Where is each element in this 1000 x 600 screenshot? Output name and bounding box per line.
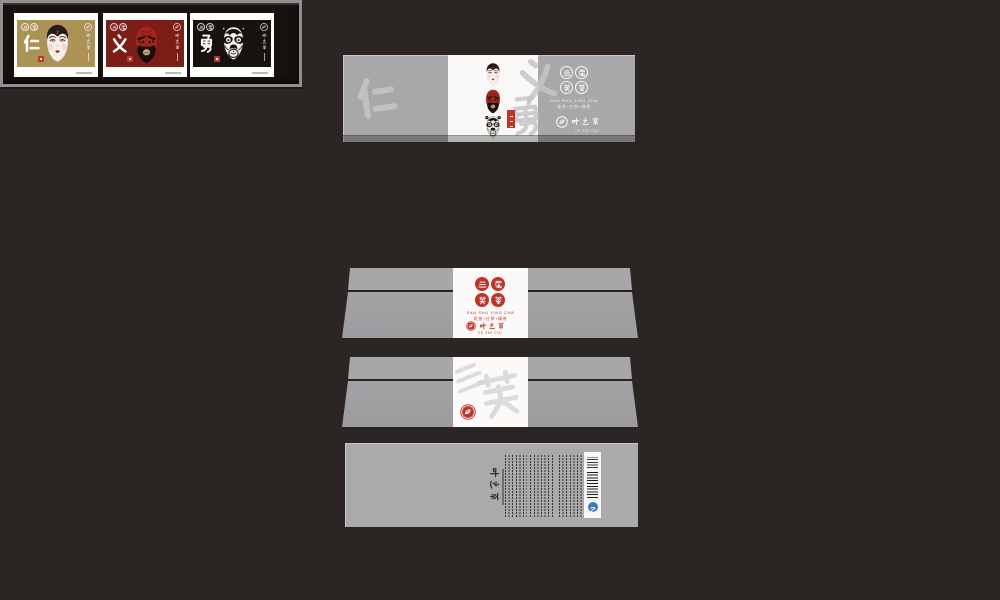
virtue-glyph-yi [109, 33, 130, 54]
brand-latin-line: SAN SHU YING CHA [456, 310, 525, 315]
card-footnote [252, 72, 268, 75]
card-seal-shu [206, 23, 214, 31]
logo-glyphs-vertical [262, 33, 267, 51]
card-seal-san [21, 23, 29, 31]
tea-types-line: 花茶+红茶+绿茶 [539, 104, 609, 109]
seal-char-cha [491, 293, 505, 307]
netweight-text-block [587, 457, 598, 468]
fine-print-columns [505, 455, 583, 517]
logo-sub-line: YE ZHI CUI [466, 331, 514, 336]
leaf-emblem-stamp [460, 404, 476, 420]
logo-glyphs-vertical [175, 33, 180, 51]
virtue-glyph-ren [20, 33, 41, 54]
vertical-rule [88, 53, 90, 61]
tea-types-line: 花茶+红茶+绿茶 [456, 316, 525, 321]
fine-print-gap [555, 455, 558, 517]
package-side-front: SAN SHU YING CHA 花茶+红茶+绿茶 YE ZHI CUI [342, 268, 638, 338]
zhang-mask-icon [218, 22, 249, 65]
card-band-black [193, 20, 271, 67]
virtue-glyph-yong [196, 33, 217, 54]
tea-card-yi [103, 13, 187, 77]
logo-glyphs-vertical [86, 33, 91, 51]
logo-glyphs [571, 117, 600, 126]
rotated-logo-glyphs [487, 467, 501, 507]
logo-glyphs [479, 322, 505, 330]
card-footnote [165, 72, 181, 75]
watermark-ying-glyph [468, 360, 528, 427]
side-paper-strip: SAN SHU YING CHA 花茶+红茶+绿茶 YE ZHI CUI [453, 268, 528, 338]
watermark-ren-glyph [344, 55, 405, 141]
vertical-rule [264, 53, 266, 61]
seal-char-shu [575, 66, 588, 79]
card-seal-san [110, 23, 118, 31]
rotated-logo-subline [502, 469, 504, 505]
leaf-emblem-icon [84, 23, 92, 31]
inner-tray [0, 0, 302, 87]
presentation-canvas: 三蜀英茶 叶之萃 仁义勇 三英 SAN SHU YING CHA 花茶+红茶+绿… [0, 0, 1000, 600]
barcode [587, 471, 598, 498]
seal-char-ying [560, 81, 573, 94]
leaf-emblem-stamp [466, 321, 476, 331]
package-base [345, 443, 638, 527]
card-band-gold [17, 20, 95, 67]
lid-bottom-edge [343, 135, 635, 142]
brand-latin-line: SAN SHU YING CHA [539, 98, 609, 103]
seal-char-san [475, 277, 489, 291]
qs-mark-icon [588, 502, 598, 512]
seal-char-san [560, 66, 573, 79]
package-side-back [342, 357, 638, 427]
card-seal-shu [30, 23, 38, 31]
leaf-emblem-icon [173, 23, 181, 31]
package-lid-top: SAN SHU YING CHA 花茶+红茶+绿茶 YE ZHI CUI [343, 55, 635, 142]
seal-char-cha [575, 81, 588, 94]
card-band-red [106, 20, 184, 67]
card-seal-san [197, 23, 205, 31]
card-seal-shu [119, 23, 127, 31]
fine-print-gap [527, 455, 530, 517]
red-seal-tag [507, 110, 515, 128]
leaf-emblem-icon [260, 23, 268, 31]
seal-char-ying [475, 293, 489, 307]
vertical-rule [177, 53, 179, 61]
tea-card-yong [190, 13, 274, 77]
dan-mask-icon [42, 22, 73, 65]
guan-mask-icon [131, 22, 162, 65]
logo-sub-line: YE ZHI CUI [563, 129, 611, 134]
barcode-strip [584, 452, 601, 518]
dan-mask-icon [482, 62, 504, 87]
card-footnote [76, 72, 92, 75]
seal-char-shu [491, 277, 505, 291]
leaf-emblem-icon [556, 116, 568, 128]
tea-card-ren [14, 13, 98, 77]
guan-mask-icon [482, 88, 504, 114]
side-paper-strip [453, 357, 528, 427]
